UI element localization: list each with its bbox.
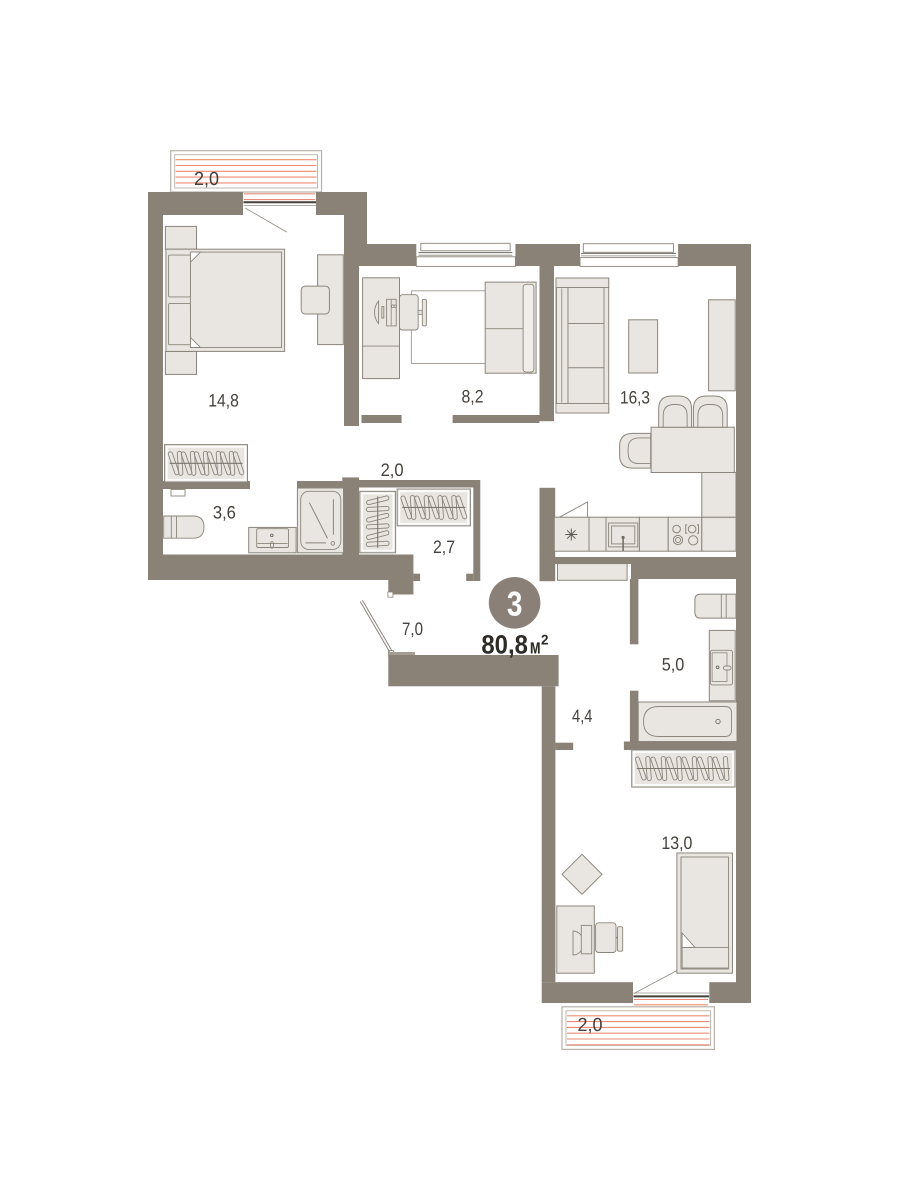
svg-text:2,0: 2,0 (194, 169, 219, 190)
svg-text:14,8: 14,8 (208, 391, 239, 411)
svg-text:4,4: 4,4 (572, 706, 593, 726)
svg-text:16,3: 16,3 (620, 387, 650, 407)
svg-text:2,0: 2,0 (381, 460, 404, 480)
svg-text:2,0: 2,0 (578, 1015, 603, 1036)
svg-text:3: 3 (507, 585, 523, 623)
svg-text:3,6: 3,6 (213, 503, 236, 523)
svg-text:5,0: 5,0 (662, 655, 685, 675)
svg-text:2,7: 2,7 (433, 537, 455, 557)
svg-text:7,0: 7,0 (402, 619, 423, 639)
svg-text:2: 2 (541, 632, 549, 648)
svg-text:80,8: 80,8 (481, 630, 528, 660)
svg-text:8,2: 8,2 (462, 387, 484, 407)
svg-text:м: м (530, 636, 541, 659)
svg-text:13,0: 13,0 (661, 833, 692, 853)
